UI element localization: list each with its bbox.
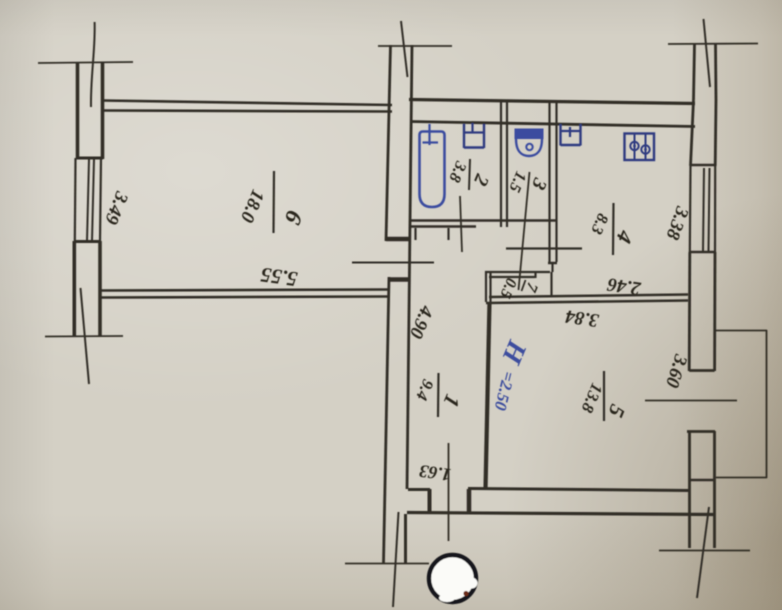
svg-text:18.0: 18.0 <box>236 187 269 226</box>
svg-text:9.4: 9.4 <box>412 377 438 403</box>
svg-text:13.8: 13.8 <box>577 381 606 416</box>
svg-text:2: 2 <box>469 170 494 189</box>
svg-text:4: 4 <box>611 226 639 247</box>
svg-text:8.3: 8.3 <box>587 211 613 237</box>
svg-text:5.55: 5.55 <box>259 263 299 292</box>
svg-text:=2.50: =2.50 <box>490 370 518 413</box>
svg-text:3.8: 3.8 <box>445 158 471 185</box>
svg-text:5: 5 <box>603 401 630 421</box>
svg-text:1: 1 <box>438 391 465 411</box>
svg-text:3.60: 3.60 <box>661 351 692 391</box>
svg-text:H: H <box>495 335 533 369</box>
svg-text:7: 7 <box>522 280 541 295</box>
svg-text:3.49: 3.49 <box>100 188 132 228</box>
svg-text:3.38: 3.38 <box>661 203 693 243</box>
svg-text:3: 3 <box>527 174 552 193</box>
svg-text:3.84: 3.84 <box>564 305 601 331</box>
svg-text:6: 6 <box>279 206 308 227</box>
svg-text:1.63: 1.63 <box>418 461 452 485</box>
